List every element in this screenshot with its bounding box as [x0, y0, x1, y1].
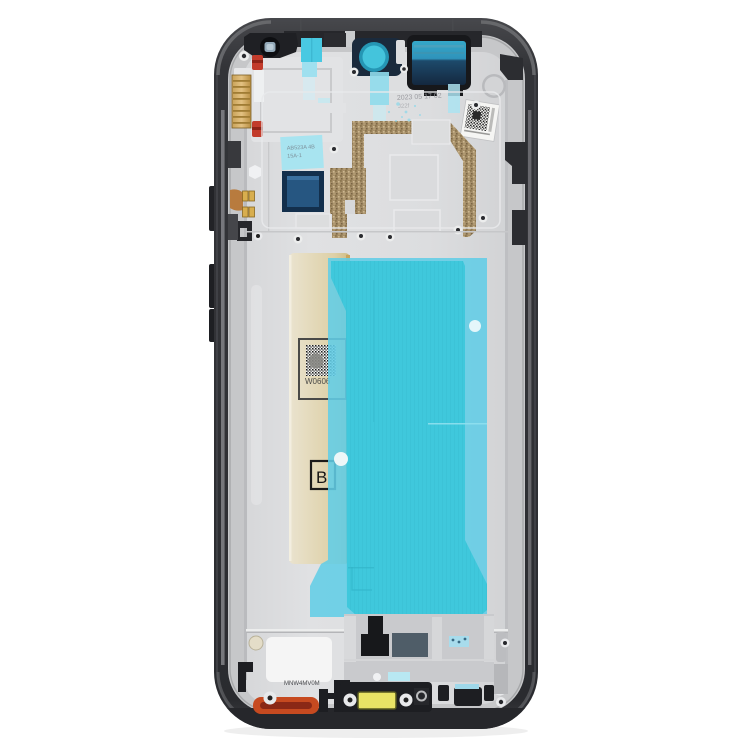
svg-text:15A-1: 15A-1 [287, 153, 302, 160]
svg-text:MNW4MV0M: MNW4MV0M [284, 681, 320, 687]
svg-text:W0606: W0606 [305, 377, 331, 386]
svg-text:B: B [316, 468, 327, 487]
